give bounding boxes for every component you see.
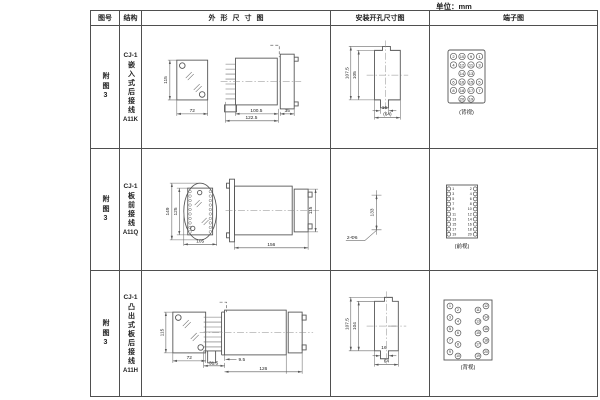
dim-side-length: 156 [267, 241, 275, 247]
outline-drawing-a11h: 115 72 9.5 [142, 271, 330, 396]
structure-name: 嵌入式后接线 [125, 61, 135, 115]
hatch-marks [195, 200, 209, 225]
dim-side-height: 115 [308, 206, 314, 214]
header-install: 安装开孔尺寸图 [331, 11, 430, 26]
structure-info: CJ-1 嵌入式后接线 A11K [123, 52, 138, 123]
dim-front-height: 115 [159, 328, 165, 336]
terminal-number: 17 [469, 87, 474, 92]
panel-cutout-dashes [270, 45, 279, 57]
side-view: 100.5 122.5 35 [221, 45, 302, 123]
terminal-number: 14 [484, 316, 488, 320]
dim-stud-width: 31.5 [209, 360, 219, 366]
install-drawing-a11k: 107.5 105 16 (64) [331, 26, 429, 149]
front-view: 115 72 [159, 312, 205, 363]
terminal-number: 1 [452, 187, 454, 191]
mounting-hole [176, 315, 182, 321]
fig-no: 附图3 [100, 195, 110, 225]
terminal-number: 5 [452, 197, 454, 201]
row1-outline-cell: 115 72 100.5 122.5 35 [142, 26, 331, 149]
front-view: 149 125 105 [165, 183, 217, 246]
dim-stud-offset: 9.5 [238, 357, 245, 363]
header-fig-no: 图号 [91, 11, 120, 26]
terminal-number: 15 [452, 222, 456, 226]
terminal-number: 5 [449, 327, 451, 331]
dim-slot-width: 16 [382, 104, 388, 110]
terminal-number: 7 [452, 202, 454, 206]
fig-no: 附图3 [100, 319, 110, 349]
header-fig-no-label: 图号 [98, 13, 112, 23]
terminal-diagram-a11q: 1 3 5 7 9 11 13 15 17 19 2 4 6 8 10 12 1 [430, 149, 597, 271]
hatch-marks [183, 320, 199, 341]
dim-body-length: 100.5 [250, 107, 262, 113]
model-label: CJ-1 [123, 52, 137, 59]
dim-inner-height: 125 [173, 207, 179, 215]
terminal-grid: 1 3 5 7 9 2 4 6 8 10 11 13 15 17 19 12 1 [447, 303, 489, 359]
terminal-block [447, 185, 478, 238]
terminal-number: 16 [468, 222, 472, 226]
row2-fig-no-cell: 附图3 [91, 149, 120, 271]
row3-outline-cell: 115 72 9.5 [142, 271, 331, 396]
hatch-marks [186, 72, 202, 92]
panel-cutout-dashes [220, 302, 227, 312]
terminal-number: 16 [460, 79, 465, 84]
install-drawing-a11q: 133 2-Φ6 [331, 149, 429, 271]
front-view: 115 72 [163, 60, 208, 116]
dim-outer-height: 107.5 [344, 318, 350, 330]
row3-terminal-cell: 1 3 5 7 9 2 4 6 8 10 11 13 15 17 19 12 1 [430, 271, 597, 396]
row2-outline-cell: 149 125 105 156 115 [142, 149, 331, 271]
terminal-number: 14 [468, 217, 472, 221]
row1-structure-cell: CJ-1 嵌入式后接线 A11K [120, 26, 142, 149]
model-label: CJ-1 [123, 183, 137, 190]
header-terminal-label: 端子图 [503, 13, 524, 23]
terminal-grid: 2 10 9 1 4 12 11 3 14 13 6 16 15 5 8 18 [450, 53, 482, 102]
terminal-number: 14 [460, 70, 465, 75]
terminal-number: 17 [476, 343, 480, 347]
dim-inner-height: 105 [352, 70, 358, 78]
view-caption: (背视) [461, 363, 476, 371]
row3-install-cell: 107.5 104 16 64 [331, 271, 430, 396]
dim-outer-height: 149 [165, 207, 171, 215]
terminal-number: 19 [476, 354, 480, 358]
terminal-diagram-a11k: 2 10 9 1 4 12 11 3 14 13 6 16 15 5 8 18 [430, 26, 597, 149]
hole-spec-label: 2-Φ6 [347, 235, 358, 241]
header-outline: 外形尺寸图 [142, 11, 331, 26]
terminal-number: 18 [460, 87, 465, 92]
type-code: A11K [123, 117, 138, 123]
terminal-number: 11 [476, 308, 480, 312]
dim-front-width: 72 [190, 107, 196, 113]
terminal-number: 20 [468, 232, 472, 236]
row3-structure-cell: CJ-1 凸出式板后接线 A11H [120, 271, 142, 396]
row2-structure-cell: CJ-1 板前接线 A11Q [120, 149, 142, 271]
outline-drawing-a11q: 149 125 105 156 115 [142, 149, 330, 271]
terminal-number: 11 [452, 212, 456, 216]
dimensions-table: 图号 结构 外形尺寸图 安装开孔尺寸图 端子图 附图3 CJ-1 嵌入式后接线 … [90, 10, 598, 397]
view-caption: (前视) [455, 242, 470, 250]
terminal-number: 18 [468, 227, 472, 231]
terminal-number: 12 [484, 304, 488, 308]
mounting-hole [199, 91, 205, 97]
terminal-number: 4 [470, 192, 472, 196]
side-view: 156 115 [226, 179, 320, 250]
terminal-number: 12 [468, 212, 472, 216]
header-outline-label: 外形尺寸图 [209, 13, 269, 23]
row1-fig-no-cell: 附图3 [91, 26, 120, 149]
dim-slot-width: 16 [381, 345, 387, 351]
terminal-number: 10 [468, 207, 472, 211]
terminal-number: 13 [476, 320, 480, 324]
terminal-number: 7 [449, 339, 451, 343]
dim-front-width: 105 [196, 238, 204, 244]
terminal-number: 2 [470, 187, 472, 191]
row1-install-cell: 107.5 105 16 (64) [331, 26, 430, 149]
model-label: CJ-1 [123, 294, 137, 301]
mounting-hole [198, 345, 204, 351]
outline-drawing-a11k: 115 72 100.5 122.5 35 [142, 26, 330, 149]
terminal-grid: 1 3 5 7 9 11 13 15 17 19 2 4 6 8 10 12 1 [447, 186, 477, 236]
fig-no: 附图3 [100, 72, 110, 102]
terminal-number: 8 [457, 343, 459, 347]
dim-flange-depth: 35 [285, 107, 291, 113]
type-code: A11H [123, 368, 138, 374]
terminal-number: 15 [476, 331, 480, 335]
dim-panel-width: 64 [384, 359, 390, 365]
dim-panel-width: (64) [383, 111, 392, 117]
dim-front-width: 72 [187, 355, 193, 361]
dim-inner-height: 104 [352, 322, 358, 330]
terminal-number: 1 [449, 304, 451, 308]
terminal-number: 8 [470, 202, 472, 206]
terminal-number: 15 [469, 79, 474, 84]
mounting-hole [198, 190, 202, 194]
terminal-number: 6 [457, 331, 459, 335]
terminal-number: 16 [484, 327, 488, 331]
terminal-number: 18 [484, 339, 488, 343]
terminal-number: 17 [452, 227, 456, 231]
header-terminal: 端子图 [430, 11, 597, 26]
install-drawing-a11h: 107.5 104 16 64 [331, 271, 429, 396]
terminal-diagram-a11h: 1 3 5 7 9 2 4 6 8 10 11 13 15 17 19 12 1 [430, 271, 597, 396]
type-code: A11Q [123, 230, 138, 236]
terminal-pins [204, 317, 222, 347]
manual-page: 单位：mm 图号 结构 外形尺寸图 安装开孔尺寸图 端子图 附图3 CJ-1 嵌… [0, 0, 600, 400]
terminal-number: 13 [469, 70, 474, 75]
structure-info: CJ-1 凸出式板后接线 A11H [123, 294, 138, 374]
terminal-number: 19 [469, 96, 474, 101]
dim-hole-spacing: 133 [370, 208, 376, 216]
row2-install-cell: 133 2-Φ6 [331, 149, 430, 271]
terminal-number: 10 [456, 354, 460, 358]
terminal-number: 20 [484, 350, 488, 354]
row1-terminal-cell: 2 10 9 1 4 12 11 3 14 13 6 16 15 5 8 18 [430, 26, 597, 149]
terminal-number: 2 [457, 308, 459, 312]
terminal-number: 19 [452, 232, 456, 236]
side-view: 9.5 31.5 126 [200, 302, 313, 374]
dim-front-height: 115 [163, 75, 169, 83]
dim-body-length: 126 [259, 366, 267, 372]
terminal-number: 3 [449, 316, 451, 320]
terminal-number: 6 [470, 197, 472, 201]
terminal-number: 9 [452, 207, 454, 211]
row2-terminal-cell: 1 3 5 7 9 11 13 15 17 19 2 4 6 8 10 12 1 [430, 149, 597, 271]
terminal-number: 3 [452, 192, 454, 196]
row3-fig-no-cell: 附图3 [91, 271, 120, 396]
terminal-number: 20 [460, 96, 465, 101]
terminal-number: 10 [460, 53, 465, 58]
header-structure: 结构 [120, 11, 142, 26]
header-install-label: 安装开孔尺寸图 [356, 13, 405, 23]
terminal-number: 13 [452, 217, 456, 221]
terminal-number: 9 [449, 350, 451, 354]
structure-name: 凸出式板后接线 [125, 303, 135, 366]
cutout-outline [375, 46, 401, 107]
dim-total-length: 122.5 [245, 115, 257, 121]
terminal-number: 4 [457, 320, 459, 324]
structure-info: CJ-1 板前接线 A11Q [123, 183, 138, 236]
mounting-hole [180, 62, 186, 68]
structure-name: 板前接线 [126, 192, 136, 228]
header-structure-label: 结构 [124, 13, 138, 23]
dim-outer-height: 107.5 [344, 66, 350, 78]
terminal-number: 12 [460, 62, 465, 67]
view-caption: (背视) [459, 108, 474, 116]
